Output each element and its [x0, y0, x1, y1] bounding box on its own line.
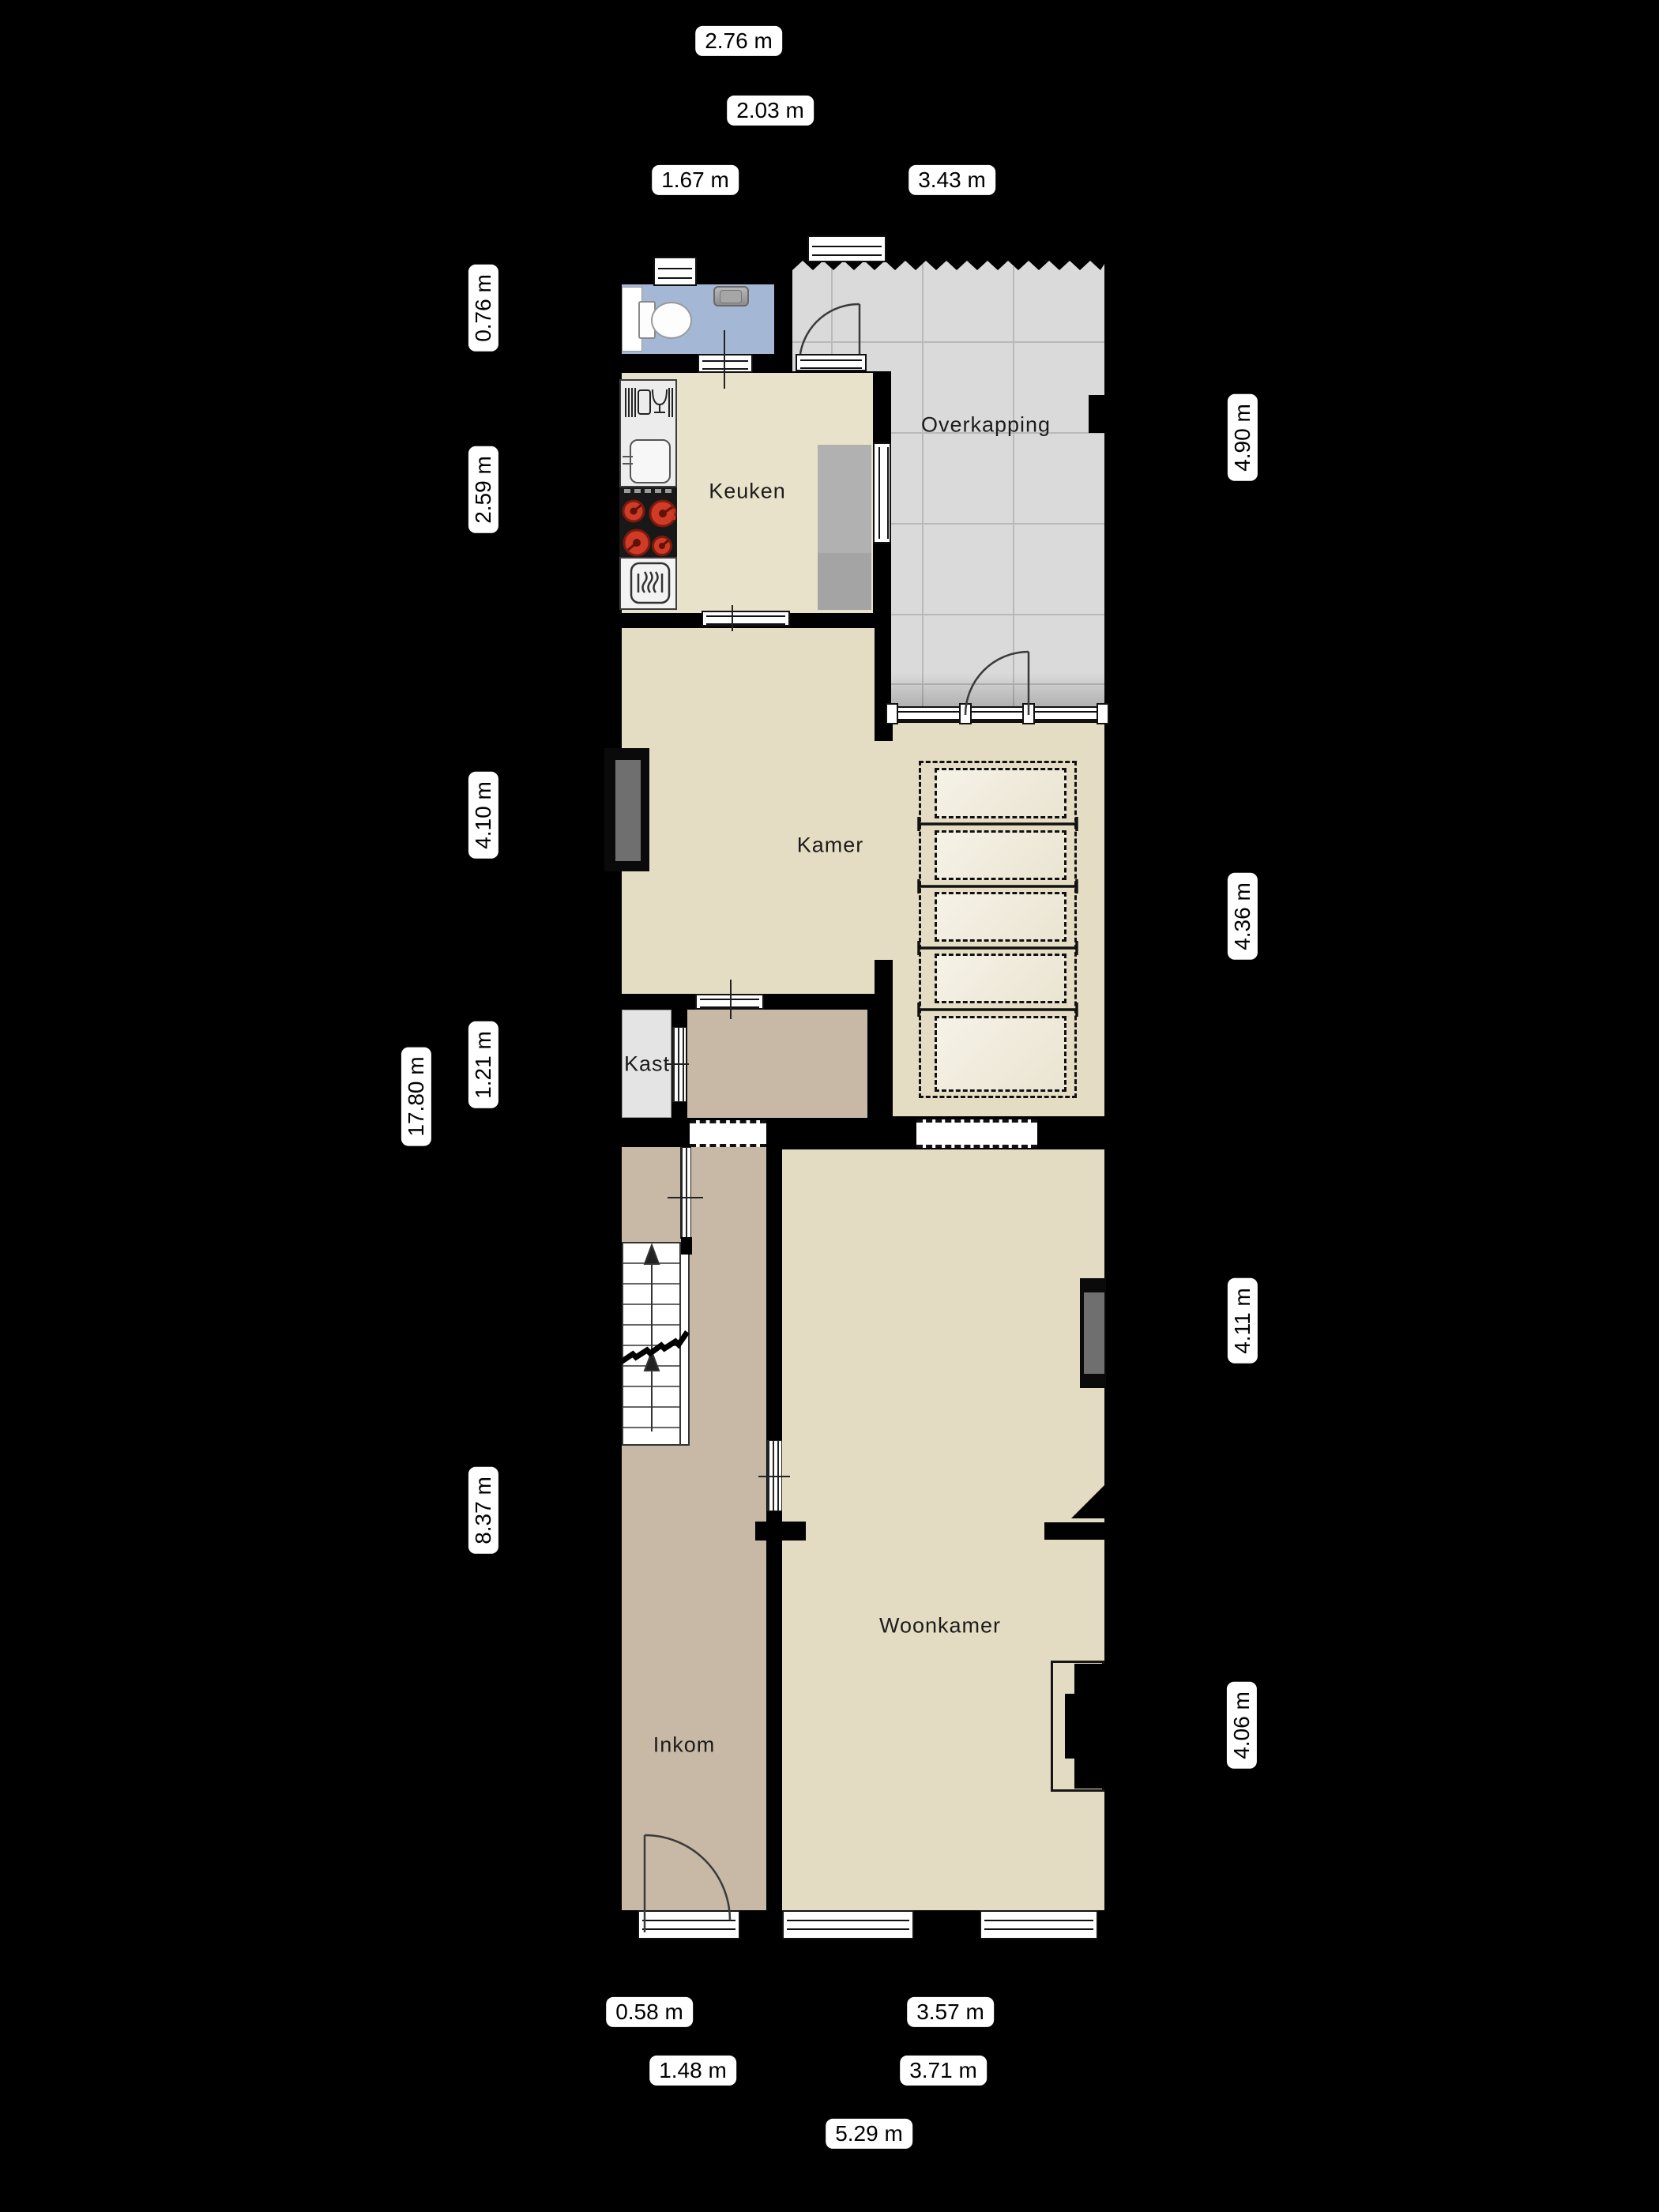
door-hall-upper [680, 1147, 691, 1239]
chimney-mass-bump [1065, 1694, 1076, 1759]
kitchen-counter-lower [818, 553, 871, 610]
window-icon-toilet-top [653, 257, 697, 286]
label-overkapping: Overkapping [921, 413, 1051, 438]
dim-bottom-4: 5.29 m [826, 2119, 912, 2149]
oven [619, 557, 677, 610]
rail-post [1022, 703, 1035, 724]
dim-right-0: 4.90 m [1228, 394, 1258, 481]
stairs-stringer [679, 1242, 681, 1446]
door-opening-keuken-overkapping [796, 354, 867, 371]
washbasin-inner [720, 290, 742, 303]
window-icon-toilet-keuken [698, 354, 753, 373]
window-pane-kamer-left [615, 760, 641, 861]
dim-left-1: 2.59 m [468, 446, 498, 533]
stairs-top-newel [681, 1237, 692, 1255]
dashed-structure-box [935, 892, 1066, 942]
floor-plan-canvas: Keuken Overkapping Kamer Kast Inkom Woon… [0, 0, 1659, 2212]
rail-post [1097, 703, 1109, 724]
washbasin-icon [713, 286, 749, 307]
dim-right-2: 4.11 m [1228, 1278, 1258, 1364]
dashed-structure-box [935, 830, 1066, 880]
window-pane-woonkamer-right [1084, 1292, 1104, 1374]
stairs-treads [623, 1243, 679, 1444]
room-kamer-left-floor [622, 628, 875, 994]
window-icon-woonkamer-bottom-right [980, 1910, 1098, 1939]
open-passage-corridor-hall [690, 1120, 766, 1147]
dim-left-3: 1.21 m [468, 1021, 498, 1108]
dashed-structure-box [935, 954, 1066, 1003]
dim-top-2: 1.67 m [652, 165, 739, 195]
entrance-door-opening [638, 1910, 740, 1939]
room-kamer-connector-floor [871, 741, 895, 960]
dim-left-0: 0.76 m [468, 265, 498, 352]
dim-top-1: 2.03 m [727, 96, 814, 126]
dim-left-5: 8.37 m [468, 1467, 498, 1554]
sliding-window-rail-overkapping [891, 706, 1104, 722]
toilet-bowl-icon [651, 302, 692, 339]
dim-bottom-2: 1.48 m [649, 2056, 736, 2086]
kitchen-sink-basin [630, 439, 671, 483]
kitchen-counter-upper [818, 445, 871, 553]
door-kast [672, 1027, 687, 1102]
window-icon-woonkamer-bottom-left [782, 1910, 914, 1939]
dim-bottom-0: 0.58 m [606, 1997, 693, 2027]
room-woonkamer-floor [782, 1149, 1104, 1910]
label-woonkamer: Woonkamer [879, 1614, 1001, 1638]
dim-top-0: 2.76 m [695, 26, 782, 56]
rail-post [959, 703, 972, 724]
label-keuken: Keuken [709, 480, 786, 504]
dashed-structure-box [935, 768, 1066, 818]
dashed-structure-box [935, 1016, 1066, 1092]
label-kast: Kast [624, 1052, 670, 1077]
label-kamer: Kamer [797, 833, 864, 858]
wall-stub-woonkamer-left [755, 1522, 806, 1540]
cooktop [619, 487, 677, 557]
dim-left-2: 4.10 m [468, 772, 498, 859]
dim-right-1: 4.36 m [1228, 873, 1258, 960]
open-passage-kamer-woonkamer [916, 1119, 1037, 1148]
window-icon-keuken-kamer [702, 611, 790, 626]
dim-bottom-1: 3.57 m [907, 1997, 994, 2027]
dim-left-4: 17.80 m [401, 1047, 431, 1145]
window-icon-keuken-right [873, 442, 891, 544]
window-icon-kamer-corridor [695, 994, 764, 1010]
pillar-overkapping-right [1089, 395, 1106, 433]
label-inkom: Inkom [653, 1733, 716, 1758]
room-corridor-floor [687, 1010, 867, 1118]
dim-right-3: 4.06 m [1227, 1682, 1257, 1769]
chimney-mass [1074, 1664, 1104, 1789]
dim-bottom-3: 3.71 m [900, 2056, 987, 2086]
door-hall-woonkamer [767, 1440, 782, 1511]
rail-post [886, 703, 898, 724]
dim-top-3: 3.43 m [908, 165, 995, 195]
door-opening-overkapping-top [807, 235, 886, 262]
